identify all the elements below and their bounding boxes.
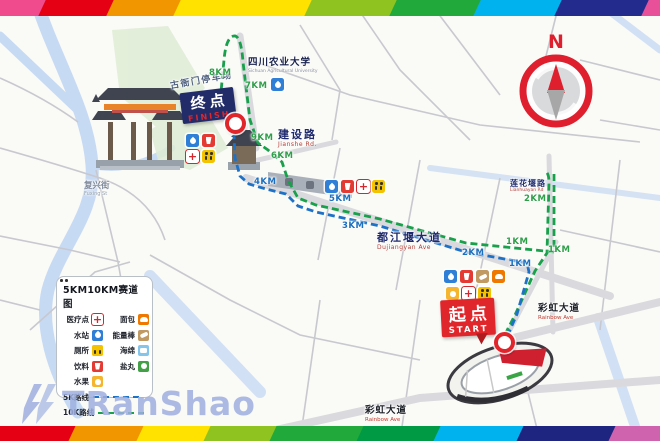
rainbow-segment: [357, 426, 447, 441]
rainbow-segment: [609, 426, 660, 441]
km-marker: 7KM: [245, 81, 267, 91]
km-marker: 3KM: [342, 221, 364, 231]
compass: N: [514, 26, 609, 156]
legend-item-label: 饮料: [74, 361, 89, 372]
km-marker: 9KM: [251, 133, 273, 143]
race-course-map: N 8KM7KM9KM6KM2KM1KM1KM4KM5KM3KM2KM1KM 古…: [0, 0, 660, 441]
place-label-cn: 四川农业大学: [248, 58, 318, 69]
place-label-en: Sichuan Agricultural University: [248, 69, 318, 74]
bread-icon: [492, 270, 505, 283]
medical-icon: [357, 180, 370, 193]
fruit-icon: [446, 287, 459, 300]
legend-item-label: 盐丸: [120, 361, 135, 372]
start-pin-icon: [494, 332, 515, 353]
km-marker: 2KM: [524, 194, 546, 204]
watermark: TRanShao: [16, 382, 256, 424]
legend-item-label: 医疗点: [67, 314, 90, 325]
place-label: 彩虹大道Rainbow Ave: [365, 406, 407, 423]
water-icon: [186, 134, 199, 147]
start-flag-tail: [476, 333, 489, 345]
place-label-cn: 彩虹大道: [538, 304, 580, 315]
place-label-en: Jianshe Rd.: [278, 142, 317, 149]
legend-salt-icon: [138, 361, 149, 372]
place-label: 四川农业大学Sichuan Agricultural University: [248, 58, 318, 74]
legend-item-label: 能量棒: [113, 330, 136, 341]
energy-icon: [476, 270, 489, 283]
legend-sponge-icon: [138, 345, 149, 356]
place-label-cn: 建设路: [278, 129, 317, 142]
place-label: 莲花堰路Lianhuayan Rd: [510, 179, 546, 193]
rainbow-segment: [173, 0, 317, 16]
watermark-bolt-icon: [16, 382, 58, 424]
km-marker: 8KM: [209, 68, 231, 78]
place-label: 建设路Jianshe Rd.: [278, 129, 317, 149]
legend-drink-icon: [92, 361, 103, 372]
km-marker: 1KM: [548, 245, 570, 255]
place-label-cn: 都江堰大道: [377, 232, 442, 245]
drink-icon: [341, 180, 354, 193]
place-label-en: Dujiangyan Ave: [377, 245, 442, 252]
place-label-en: Rainbow Ave: [365, 417, 407, 423]
legend-item-label: 面包: [120, 314, 135, 325]
compass-n-label: N: [548, 31, 564, 53]
place-label-en: Fuxing St: [84, 192, 110, 198]
place-label: 都江堰大道Dujiangyan Ave: [377, 232, 442, 252]
rainbow-segment: [270, 426, 370, 441]
km-marker: 6KM: [271, 151, 293, 161]
legend-box: 5KM10KM赛道图 医疗点面包水站能量棒厕所海绵饮料盐丸水果 5K路线 10K…: [56, 276, 153, 398]
place-label-en: Lianhuayan Rd: [510, 188, 546, 193]
place-label: 彩虹大道Rainbow Ave: [538, 304, 580, 321]
rainbow-segment: [304, 0, 402, 16]
place-label-cn: 莲花堰路: [510, 179, 546, 188]
legend-item-label: 海绵: [120, 345, 135, 356]
finish-pin-icon: [225, 113, 246, 134]
toilet-icon: [372, 180, 385, 193]
legend-medical-icon: [92, 314, 103, 325]
drink-icon: [202, 134, 215, 147]
watermark-text: TRanShao: [62, 384, 256, 423]
legend-water-icon: [92, 330, 103, 341]
drink-icon: [460, 270, 473, 283]
legend-item-label: 水站: [74, 330, 89, 341]
km-marker: 1KM: [509, 259, 531, 269]
rainbow-segment: [434, 426, 530, 441]
rainbow-stripe-bottom: [0, 426, 660, 441]
km-marker: 2KM: [462, 248, 484, 258]
rainbow-stripe-top: [0, 0, 660, 16]
legend-grid: 医疗点面包水站能量棒厕所海绵饮料盐丸水果: [63, 314, 146, 387]
km-marker: 1KM: [506, 237, 528, 247]
water-icon: [325, 180, 338, 193]
km-marker: 5KM: [329, 194, 351, 204]
water-icon: [271, 78, 284, 91]
rainbow-segment: [554, 0, 654, 16]
rainbow-segment: [389, 0, 486, 16]
start-flag: 起点 START: [440, 298, 496, 338]
rainbow-segment: [473, 0, 567, 16]
place-label: 复兴街Fuxing St: [84, 182, 110, 198]
medical-icon: [186, 150, 199, 163]
legend-item-label: 厕所: [74, 345, 89, 356]
water-icon: [444, 270, 457, 283]
place-label-cn: 彩虹大道: [365, 406, 407, 417]
toilet-icon: [202, 150, 215, 163]
legend-energy-icon: [138, 330, 149, 341]
place-label-en: Rainbow Ave: [538, 315, 580, 321]
km-marker: 4KM: [254, 177, 276, 187]
start-label-cn: 起点: [448, 299, 491, 326]
rainbow-segment: [517, 426, 622, 441]
legend-bread-icon: [138, 314, 149, 325]
legend-title: 5KM10KM赛道图: [63, 282, 146, 310]
legend-toilet-icon: [92, 345, 103, 356]
